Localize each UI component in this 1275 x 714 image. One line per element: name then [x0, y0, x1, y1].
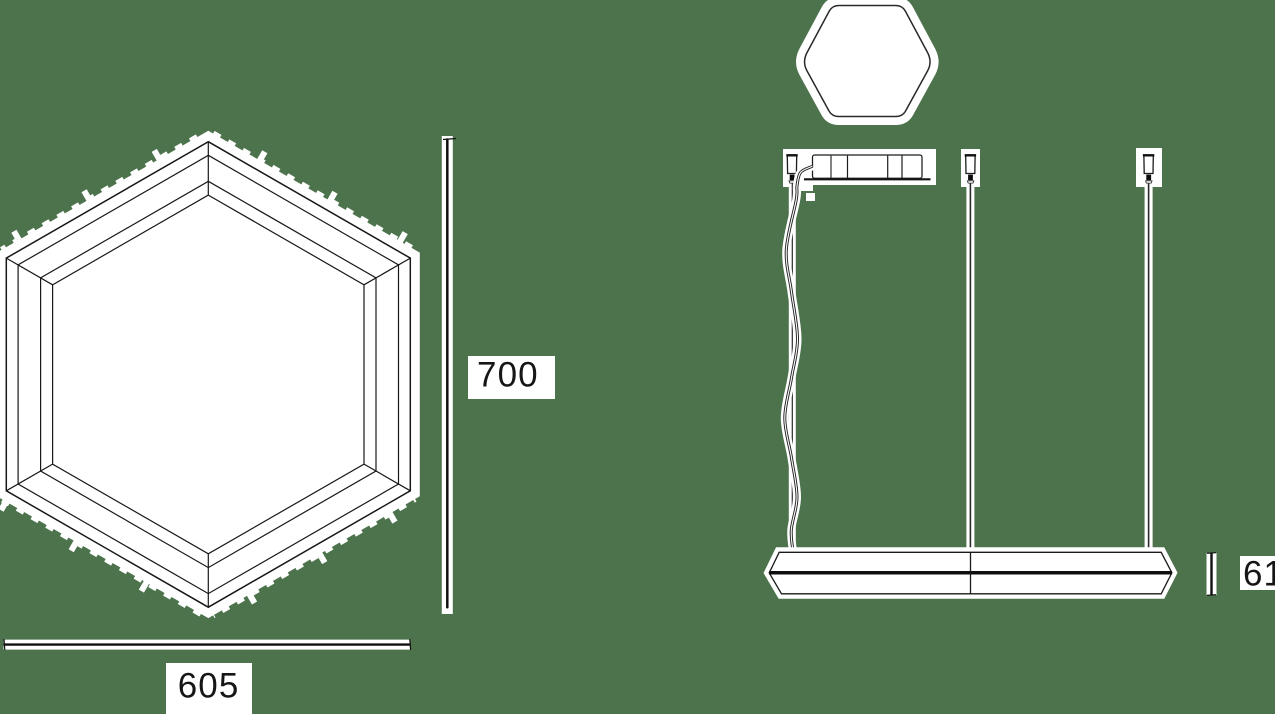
svg-text:700: 700 — [477, 356, 539, 395]
svg-text:61: 61 — [1243, 555, 1275, 594]
svg-text:605: 605 — [178, 667, 240, 706]
